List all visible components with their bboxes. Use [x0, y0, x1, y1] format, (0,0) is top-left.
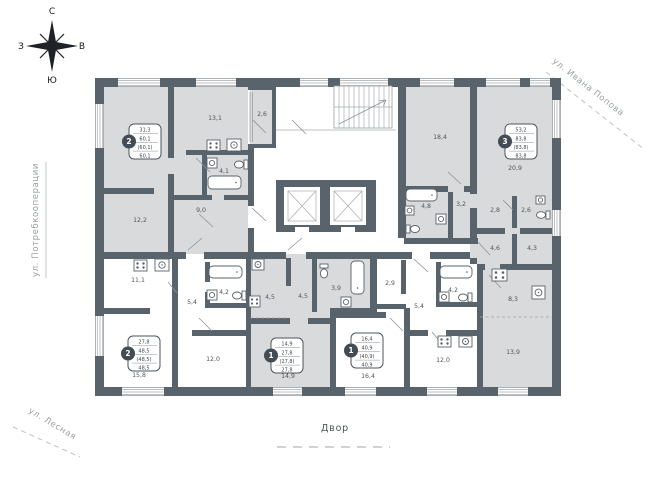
room-area-label: 4,2	[219, 289, 229, 296]
room-area-label: 8,3	[508, 296, 518, 303]
svg-text:53,2: 53,2	[515, 128, 526, 134]
sink-icon	[252, 259, 264, 270]
room-area-label: 4,2	[448, 287, 458, 294]
sink-icon	[459, 336, 472, 347]
window	[273, 388, 302, 396]
svg-text:27,8: 27,8	[138, 340, 149, 346]
room-area-label: 4,1	[219, 168, 229, 175]
window	[427, 388, 457, 396]
room-area-label: 16,4	[361, 373, 375, 380]
window	[345, 388, 376, 396]
room-area-label: 11,1	[131, 277, 145, 284]
bathtub-icon	[208, 176, 241, 189]
svg-text:(40,9): (40,9)	[359, 354, 374, 360]
svg-text:83,8: 83,8	[515, 136, 526, 142]
window	[96, 104, 104, 148]
toilet-icon	[406, 225, 420, 233]
room-area-label: 12,2	[133, 217, 147, 224]
stove-icon	[249, 296, 260, 307]
room-area-label: 12,0	[206, 356, 220, 363]
room-area-label: 2,6	[521, 207, 531, 214]
washing-machine-icon	[341, 297, 351, 307]
window	[196, 79, 236, 87]
svg-text:48,5: 48,5	[138, 366, 149, 372]
room-area-label: 3,9	[331, 285, 341, 292]
svg-text:48,5: 48,5	[138, 348, 149, 354]
room-area-label: 9,0	[196, 207, 206, 214]
sink-icon	[532, 286, 545, 299]
svg-text:2: 2	[126, 137, 131, 146]
svg-text:60,1: 60,1	[139, 154, 150, 160]
toilet-icon	[320, 264, 328, 278]
room-area-label: 5,4	[187, 299, 197, 306]
room-area-label: 13,1	[208, 115, 222, 122]
stove-icon	[492, 269, 507, 281]
sink-icon	[227, 139, 241, 151]
window	[340, 79, 388, 87]
room-area-label: 20,9	[508, 165, 522, 172]
window	[118, 79, 160, 87]
toilet-icon	[233, 291, 247, 300]
sink-icon	[405, 206, 414, 215]
room-area-label: 18,4	[433, 134, 447, 141]
room-area-label: 3,2	[456, 201, 466, 208]
svg-text:40,9: 40,9	[361, 363, 372, 369]
washing-machine-icon	[207, 290, 217, 300]
window	[300, 79, 328, 87]
room-area-label: 5,4	[414, 303, 424, 310]
floor-plan-page: С Ю З В ул. Ивана Попова ул. Потребкоопе…	[0, 0, 651, 483]
window	[420, 79, 454, 87]
bathtub-icon	[351, 261, 364, 294]
svg-text:(60,1): (60,1)	[137, 145, 152, 151]
svg-text:3: 3	[502, 137, 507, 146]
sink-icon	[536, 196, 545, 204]
apartment-badge-1-right[interactable]: 16,4 40,9 (40,9) 40,9 1	[344, 333, 383, 369]
room-area-label: 13,9	[506, 349, 520, 356]
street-potrebkooperacii-label: ул. Потребкооперации	[31, 163, 41, 277]
room-area-label: 12,0	[436, 357, 450, 364]
compass-west-label: З	[18, 42, 24, 52]
room-area-label: 4,5	[265, 294, 275, 301]
compass-north-label: С	[49, 7, 55, 17]
svg-text:16,4: 16,4	[361, 337, 372, 343]
svg-text:83,8: 83,8	[515, 154, 526, 160]
stairs-icon	[276, 86, 396, 130]
compass-east-label: В	[79, 42, 85, 52]
window	[122, 388, 164, 396]
elevator-block	[276, 180, 376, 232]
courtyard-label: Двор	[321, 423, 349, 434]
svg-text:31,3: 31,3	[139, 128, 150, 134]
street-ivana-popova-label: ул. Ивана Попова	[550, 56, 626, 118]
svg-text:14,9: 14,9	[281, 342, 292, 348]
svg-text:2: 2	[125, 349, 130, 358]
bathtub-icon	[440, 266, 472, 278]
room-area-label: 4,8	[421, 203, 431, 210]
toilet-icon	[459, 293, 473, 302]
toilet-icon	[537, 211, 551, 219]
stove-icon	[207, 140, 220, 151]
room-area-label: 2,9	[385, 280, 395, 287]
room-area-label: 4,6	[490, 245, 500, 252]
room-area-label: 14,9	[281, 373, 295, 380]
room-area-label: 2,8	[490, 207, 500, 214]
svg-text:60,1: 60,1	[139, 136, 150, 142]
room-area-label: 4,5	[298, 293, 308, 300]
compass-south-label: Ю	[47, 76, 57, 86]
window	[486, 79, 520, 87]
apartment-fills	[99, 82, 552, 390]
room-area-label: 2,6	[257, 111, 267, 118]
floor-plan: С Ю З В ул. Ивана Попова ул. Потребкоопе…	[0, 0, 651, 483]
apartment-badge-2-bottom-left[interactable]: 27,8 48,5 (48,5) 48,5 2	[121, 336, 160, 372]
stove-icon	[438, 336, 451, 347]
svg-text:(83,8): (83,8)	[513, 145, 528, 151]
svg-text:40,9: 40,9	[361, 345, 372, 351]
svg-text:(27,8): (27,8)	[279, 359, 294, 365]
window	[553, 100, 561, 138]
room-area-label: 15,8	[132, 372, 146, 379]
compass-rose-icon: С Ю З В	[18, 7, 85, 86]
bathtub-icon	[209, 266, 242, 278]
sink-icon	[155, 259, 169, 271]
stove-icon	[134, 260, 147, 271]
window	[96, 316, 104, 356]
bathtub-icon	[406, 189, 437, 201]
svg-text:(48,5): (48,5)	[136, 357, 151, 363]
svg-text:1: 1	[348, 346, 353, 355]
street-lesnaya-label: ул. Лесная	[26, 406, 77, 442]
washing-machine-icon	[207, 158, 217, 168]
svg-text:27,8: 27,8	[281, 350, 292, 356]
window	[553, 210, 561, 236]
window	[530, 79, 550, 87]
svg-text:1: 1	[268, 351, 273, 360]
window	[498, 388, 528, 396]
toilet-icon	[235, 160, 249, 169]
room-area-label: 4,3	[527, 245, 537, 252]
svg-text:27,8: 27,8	[281, 368, 292, 374]
washing-machine-icon	[436, 214, 446, 224]
